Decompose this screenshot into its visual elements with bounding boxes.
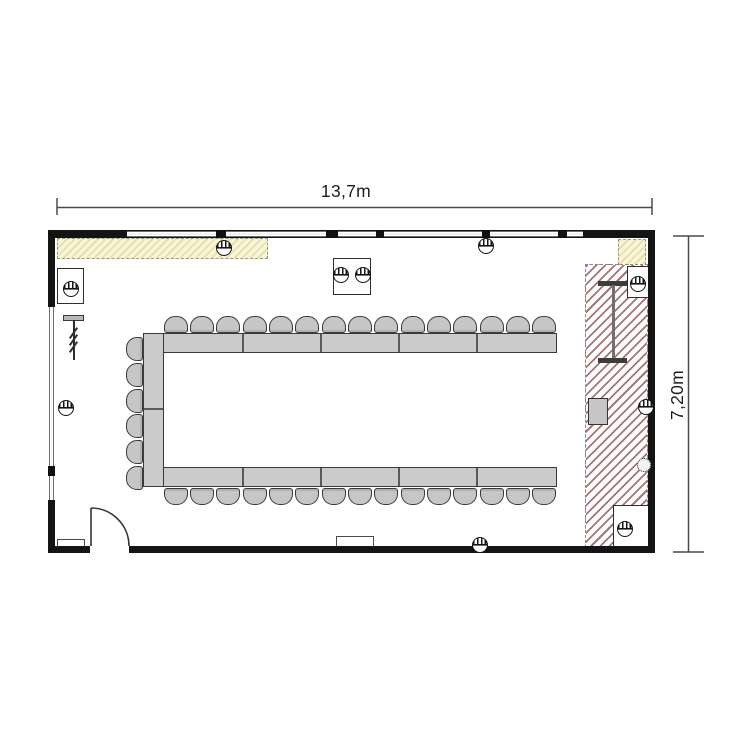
u-table-chair: [164, 488, 188, 505]
wall-lamp-icon: [58, 400, 74, 416]
lectern: [588, 398, 608, 425]
table-seam: [320, 334, 322, 352]
round-chair-icon: [355, 267, 371, 283]
u-table-chair: [216, 488, 240, 505]
u-table-chair: [348, 316, 372, 333]
table-seam: [144, 408, 163, 410]
window-band-top: [127, 231, 583, 237]
u-table-chair: [269, 488, 293, 505]
u-table-chair: [243, 488, 267, 505]
u-table-chair: [243, 316, 267, 333]
u-table-chair: [216, 316, 240, 333]
u-table-chair: [480, 488, 504, 505]
corner-zone-hatch: [618, 239, 646, 265]
mullion: [376, 230, 384, 238]
u-table-chair: [427, 488, 451, 505]
wall-left-upper: [48, 230, 55, 307]
u-table-chair: [190, 488, 214, 505]
socket-cluster-icon: [637, 458, 651, 472]
wall-bottom-right: [129, 546, 655, 553]
u-table-chair: [532, 488, 556, 505]
table-seam: [242, 468, 244, 486]
u-table-left-arm: [143, 333, 164, 487]
height-dimension-label: 7,20m: [667, 360, 687, 430]
table-seam: [398, 334, 400, 352]
wall-bottom-left: [48, 546, 90, 553]
u-table-chair: [427, 316, 451, 333]
table-seam: [476, 468, 478, 486]
u-table-chair: [126, 440, 143, 464]
u-table-chair: [126, 363, 143, 387]
u-table-chair: [374, 488, 398, 505]
u-table-chair: [126, 337, 143, 361]
u-table-chair: [480, 316, 504, 333]
wall-right: [648, 230, 655, 553]
buffet-zone-hatch: [57, 238, 268, 259]
u-table-chair: [506, 316, 530, 333]
round-chair-icon: [630, 276, 646, 292]
table-seam: [398, 468, 400, 486]
u-table-chair: [126, 389, 143, 413]
round-chair-icon: [617, 521, 633, 537]
u-table-chair: [453, 316, 477, 333]
u-table-chair: [401, 488, 425, 505]
projection-screen: [598, 358, 627, 363]
mullion: [482, 230, 490, 238]
round-chair-icon: [333, 267, 349, 283]
u-table-chair: [322, 316, 346, 333]
mullion: [326, 230, 338, 238]
u-table-chair: [164, 316, 188, 333]
mullion: [558, 230, 567, 238]
wall-lamp-icon: [216, 240, 232, 256]
round-chair-icon: [63, 281, 79, 297]
u-table-chair: [401, 316, 425, 333]
mullion: [48, 466, 55, 476]
u-table-chair: [295, 316, 319, 333]
u-table-bottom-arm: [163, 467, 557, 487]
floor-plan: 13,7m 7,20m: [0, 0, 750, 750]
wall-lamp-icon: [472, 537, 488, 553]
u-table-chair: [532, 316, 556, 333]
projection-screen: [612, 285, 615, 359]
mullion: [216, 230, 226, 238]
u-table-chair: [126, 414, 143, 438]
u-table-chair: [348, 488, 372, 505]
u-table-chair: [269, 316, 293, 333]
u-table-chair: [374, 316, 398, 333]
u-table-chair: [190, 316, 214, 333]
u-table-chair: [126, 466, 143, 490]
wall-lamp-icon: [478, 238, 494, 254]
u-table-chair: [453, 488, 477, 505]
table-seam: [320, 468, 322, 486]
u-table-top-arm: [163, 333, 557, 353]
u-table-chair: [295, 488, 319, 505]
table-seam: [242, 334, 244, 352]
u-table-chair: [322, 488, 346, 505]
u-table-chair: [506, 488, 530, 505]
width-dimension-label: 13,7m: [306, 181, 386, 201]
table-seam: [476, 334, 478, 352]
entrance-door-swing: [91, 508, 129, 546]
wall-lamp-icon: [638, 399, 654, 415]
